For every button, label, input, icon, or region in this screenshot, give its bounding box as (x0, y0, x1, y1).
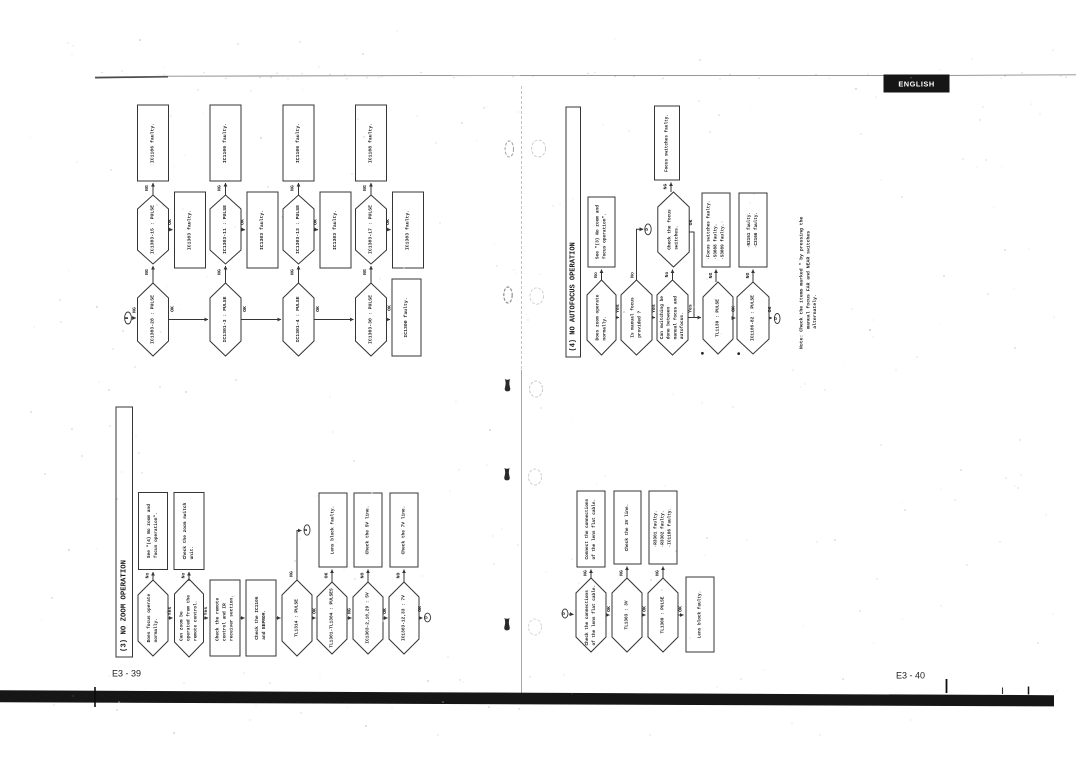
svg-text:Lens block faulty.: Lens block faulty. (698, 591, 703, 638)
svg-text:IC1303-28 : PULSE: IC1303-28 : PULSE (150, 295, 156, 344)
svg-text:OK: OK (382, 608, 388, 614)
svg-text:remote control.: remote control. (193, 600, 199, 641)
svg-text:of the lens flat cable.: of the lens flat cable. (592, 499, 597, 560)
svg-text:operated from the: operated from the (186, 595, 192, 641)
svg-text:OK: OK (688, 220, 694, 226)
svg-text:OK: OK (606, 606, 612, 612)
svg-text:NG: NG (290, 185, 296, 191)
svg-text:TL1303 : 3V: TL1303 : 3V (625, 600, 630, 629)
svg-text:·S3089 faulty.: ·S3089 faulty. (721, 224, 726, 260)
svg-text:Check the connections: Check the connections (585, 590, 590, 646)
svg-text:·R3302 faulty.: ·R3302 faulty. (661, 511, 666, 548)
svg-text:Is manual focus: Is manual focus (630, 297, 636, 338)
svg-text:manual focus and: manual focus and (672, 296, 678, 340)
svg-text:autofocus.: autofocus. (679, 312, 685, 339)
svg-text:done between: done between (666, 306, 672, 339)
svg-text:OK: OK (642, 606, 648, 612)
svg-text:IC1303-2,10,29 : 5V: IC1303-2,10,29 : 5V (365, 592, 371, 644)
svg-text:TL1301-TL1304 : PULSES: TL1301-TL1304 : PULSES (329, 588, 335, 648)
svg-text:IC1303-30 : PULSE: IC1303-30 : PULSE (368, 295, 374, 344)
svg-text:IC1303-17 : PULSE: IC1303-17 : PULSE (368, 205, 374, 254)
svg-text:Does focus operate: Does focus operate (146, 593, 152, 642)
svg-text:Can zoom be: Can zoom be (179, 611, 185, 641)
svg-text:NG: NG (132, 307, 138, 313)
svg-text:normally.: normally. (602, 316, 608, 340)
svg-text:NG: NG (708, 273, 714, 279)
svg-text:E3 - 40: E3 - 40 (896, 671, 925, 681)
svg-text:Check the 3V line.: Check the 3V line. (625, 504, 630, 551)
svg-text:IC1303-11 : PULSE: IC1303-11 : PULSE (222, 205, 228, 254)
svg-text:IC1303 faulty.: IC1303 faulty. (332, 210, 338, 250)
svg-text:No: No (145, 573, 151, 579)
svg-text:Yes: Yes (615, 304, 621, 313)
svg-text:OK: OK (417, 606, 423, 612)
svg-text:NG: NG (289, 571, 295, 577)
svg-text:OK: OK (387, 305, 393, 311)
svg-text:E3 - 39: E3 - 39 (112, 669, 141, 679)
svg-text:Yes: Yes (688, 304, 694, 313)
svg-text:OK: OK (170, 306, 176, 312)
svg-text:OK: OK (731, 306, 737, 312)
svg-text:OK: OK (167, 219, 173, 225)
svg-text:Check the 7V line.: Check the 7V line. (401, 506, 407, 555)
svg-text:OK: OK (242, 306, 248, 312)
svg-text:NG: NG (619, 570, 625, 576)
svg-text:manual focus FAR and NEAR swit: manual focus FAR and NEAR switches (805, 231, 811, 329)
svg-text:·S3088 faulty.: ·S3088 faulty. (714, 224, 719, 260)
svg-text:(4) NO AUTOFOCUS OPERATION: (4) NO AUTOFOCUS OPERATION (569, 242, 577, 351)
svg-text:TL1139 : PULSE: TL1139 : PULSE (715, 299, 721, 337)
svg-text:No: No (181, 573, 187, 579)
svg-text:IC1106 faulty.: IC1106 faulty. (150, 123, 156, 163)
svg-text:NG: NG (663, 184, 669, 190)
svg-text:unit.: unit. (189, 546, 195, 560)
svg-text:(3) NO ZOOM OPERATION: (3) NO ZOOM OPERATION (120, 560, 128, 652)
svg-text:NO: NO (396, 573, 402, 579)
svg-text:Check the IC1106: Check the IC1106 (254, 596, 260, 640)
svg-text:Connect the connections: Connect the connections (585, 499, 590, 560)
svg-text:Yes: Yes (651, 304, 657, 313)
svg-text:IC1301-4 : PULSE: IC1301-4 : PULSE (295, 296, 301, 342)
svg-text:·R3151 faulty.: ·R3151 faulty. (747, 212, 752, 248)
svg-text:Focus switches faulty.: Focus switches faulty. (665, 114, 670, 172)
svg-text:OK: OK (312, 608, 318, 614)
svg-text:of the lens flat cable.: of the lens flat cable. (592, 585, 597, 646)
svg-text:normally.: normally. (153, 618, 159, 642)
svg-text:NO: NO (360, 573, 366, 579)
svg-text:NG: NG (217, 269, 223, 275)
svg-text:IC1303-13 : PULSE: IC1303-13 : PULSE (295, 205, 301, 254)
svg-text:NG: NG (362, 269, 368, 275)
svg-text:NG: NG (290, 269, 296, 275)
svg-text:Does zoom operate: Does zoom operate (595, 294, 601, 340)
svg-text:NG: NG (144, 185, 150, 191)
svg-text:Check the 5V line.: Check the 5V line. (365, 506, 371, 555)
svg-text:Check the focus: Check the focus (667, 209, 673, 250)
svg-text:NG: NG (144, 269, 150, 275)
svg-text:IC1303-15 : PULSE: IC1303-15 : PULSE (150, 205, 156, 254)
svg-text:control and IR: control and IR (222, 603, 228, 641)
svg-text:·C3166 faulty.: ·C3166 faulty. (754, 212, 759, 248)
svg-text:IC1108 faulty.: IC1108 faulty. (368, 123, 374, 163)
svg-text:NG: NG (655, 570, 661, 576)
svg-text:IC1106 faulty.: IC1106 faulty. (222, 123, 228, 163)
svg-text:NG: NG (745, 273, 751, 279)
svg-text:NG: NG (362, 185, 368, 191)
svg-text:alternately.: alternately. (812, 294, 818, 329)
svg-text:focus operation".: focus operation". (602, 213, 608, 259)
svg-text:Lens block faulty.: Lens block faulty. (330, 506, 336, 555)
svg-text:IC1303 faulty.: IC1303 faulty. (187, 210, 193, 250)
svg-text:No: No (630, 272, 636, 278)
svg-text:NG: NG (583, 570, 589, 576)
svg-text:TL1314 : PULSE: TL1314 : PULSE (294, 599, 300, 637)
svg-text:focus operation".: focus operation". (153, 512, 159, 558)
svg-text:receiver section.: receiver section. (229, 595, 235, 641)
svg-text:switches.: switches. (674, 225, 680, 249)
svg-text:·IC1106 faulty.: ·IC1106 faulty. (668, 508, 673, 548)
svg-text:Can switching be: Can switching be (659, 296, 665, 340)
svg-text:No: No (593, 272, 599, 278)
svg-text:Check the remote: Check the remote (215, 597, 221, 641)
svg-text:·Focus switches faulty.: ·Focus switches faulty. (707, 200, 712, 259)
svg-text:and EEPROM.: and EEPROM. (261, 610, 267, 640)
svg-text:IC1106 faulty.: IC1106 faulty. (295, 123, 301, 163)
svg-text:IC1106-82 : PULSE: IC1106-82 : PULSE (750, 295, 756, 341)
svg-text:Note: Check the items marked: Note: Check the items marked * by pressi… (799, 216, 805, 349)
svg-text:OK: OK (385, 219, 391, 225)
svg-text:TL1309 : PULSE: TL1309 : PULSE (661, 596, 666, 633)
svg-text:ENGLISH: ENGLISH (898, 79, 934, 88)
svg-text:See "(4) No zoom and: See "(4) No zoom and (146, 504, 152, 558)
svg-text:Yes: Yes (203, 607, 209, 616)
svg-text:No: No (664, 272, 670, 278)
svg-text:OK: OK (315, 306, 321, 312)
svg-text:·R3301 faulty.: ·R3301 faulty. (654, 511, 659, 548)
svg-text:NG: NG (347, 608, 353, 614)
svg-text:IC1300 faulty.: IC1300 faulty. (403, 297, 409, 337)
svg-text:OK: OK (324, 573, 330, 579)
svg-text:provided ?: provided ? (637, 310, 643, 337)
svg-text:OK: OK (240, 219, 246, 225)
svg-text:See "(3) No zoom and: See "(3) No zoom and (595, 205, 601, 259)
svg-text:OK: OK (313, 219, 319, 225)
svg-text:Yes: Yes (167, 607, 173, 616)
svg-text:IC1303 faulty.: IC1303 faulty. (405, 210, 411, 250)
svg-text:IC1303 faulty.: IC1303 faulty. (259, 210, 265, 250)
svg-text:IC1301-3 : PULSE: IC1301-3 : PULSE (222, 296, 228, 342)
svg-text:OK: OK (678, 606, 684, 612)
svg-text:IC1303-12,33 : 7V: IC1303-12,33 : 7V (401, 595, 407, 641)
svg-text:OK: OK (767, 307, 773, 313)
svg-text:Check the zoom switch: Check the zoom switch (182, 502, 188, 559)
svg-text:NG: NG (217, 185, 223, 191)
